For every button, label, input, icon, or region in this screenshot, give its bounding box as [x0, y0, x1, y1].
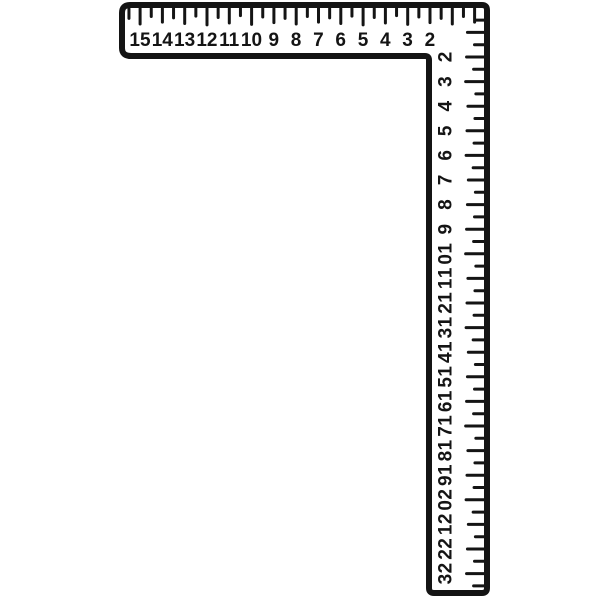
vertical-scale-number-digit: 2	[436, 563, 457, 574]
horizontal-scale-number: 13	[174, 30, 195, 51]
vertical-scale-number-digit: 1	[436, 243, 457, 254]
vertical-scale-number-digit: 7	[436, 175, 457, 186]
vertical-scale-number-digit: 2	[436, 52, 457, 63]
horizontal-scale-number: 4	[380, 30, 391, 51]
framing-square-drawing: 15141312111098765432 2345678910111213141…	[0, 0, 600, 600]
vertical-scale-numbers: 234567891011121314151617181920212223	[436, 52, 457, 585]
vertical-scale-ticks	[466, 20, 484, 586]
vertical-scale-number-digit: 2	[436, 303, 457, 314]
vertical-scale-number-digit: 1	[436, 524, 457, 535]
vertical-scale-number-digit: 1	[436, 439, 457, 450]
horizontal-scale-number: 10	[241, 30, 262, 51]
vertical-scale-number-digit: 2	[436, 549, 457, 560]
horizontal-scale-number: 8	[291, 30, 302, 51]
horizontal-scale-number: 7	[313, 30, 324, 51]
vertical-scale-number-digit: 1	[436, 278, 457, 289]
vertical-scale-number-digit: 1	[436, 415, 457, 426]
vertical-scale-number-digit: 5	[436, 377, 457, 388]
vertical-scale-number-digit: 6	[436, 402, 457, 413]
vertical-scale-number-digit: 0	[436, 254, 457, 265]
square-outline	[122, 5, 487, 593]
vertical-scale-number-digit: 1	[436, 390, 457, 401]
vertical-scale-number-digit: 3	[436, 76, 457, 87]
vertical-scale-number-digit: 8	[436, 451, 457, 462]
vertical-scale-number-digit: 4	[436, 100, 457, 111]
vertical-scale-number-digit: 0	[436, 500, 457, 511]
vertical-scale-number-digit: 9	[436, 224, 457, 235]
horizontal-scale-number: 5	[358, 30, 369, 51]
horizontal-scale-number: 6	[335, 30, 346, 51]
vertical-scale-number-digit: 1	[436, 366, 457, 377]
horizontal-scale-number: 3	[402, 30, 413, 51]
vertical-scale-number-digit: 2	[436, 538, 457, 549]
horizontal-scale-number: 14	[152, 30, 174, 51]
vertical-scale-number-digit: 3	[436, 328, 457, 339]
vertical-scale-number-digit: 6	[436, 150, 457, 161]
horizontal-scale-number: 12	[196, 30, 217, 51]
vertical-scale-number-digit: 1	[436, 341, 457, 352]
horizontal-scale-number: 2	[425, 30, 436, 51]
vertical-scale-number-digit: 5	[436, 125, 457, 136]
vertical-scale-number-digit: 1	[436, 316, 457, 327]
vertical-scale-number-digit: 9	[436, 475, 457, 486]
vertical-scale-number-digit: 3	[436, 574, 457, 585]
vertical-scale-number-digit: 1	[436, 267, 457, 278]
vertical-scale-number-digit: 2	[436, 514, 457, 525]
vertical-scale-number-digit: 2	[436, 489, 457, 500]
vertical-scale-number-digit: 1	[436, 292, 457, 303]
vertical-scale-number-digit: 8	[436, 199, 457, 210]
vertical-scale-number-digit: 4	[436, 352, 457, 363]
vertical-scale-number-digit: 7	[436, 426, 457, 437]
page-background: 15141312111098765432 2345678910111213141…	[0, 0, 600, 600]
horizontal-scale-number: 11	[219, 30, 240, 51]
vertical-scale-number-digit: 1	[436, 464, 457, 475]
horizontal-scale-number: 15	[129, 30, 151, 51]
horizontal-scale-number: 9	[269, 30, 280, 51]
